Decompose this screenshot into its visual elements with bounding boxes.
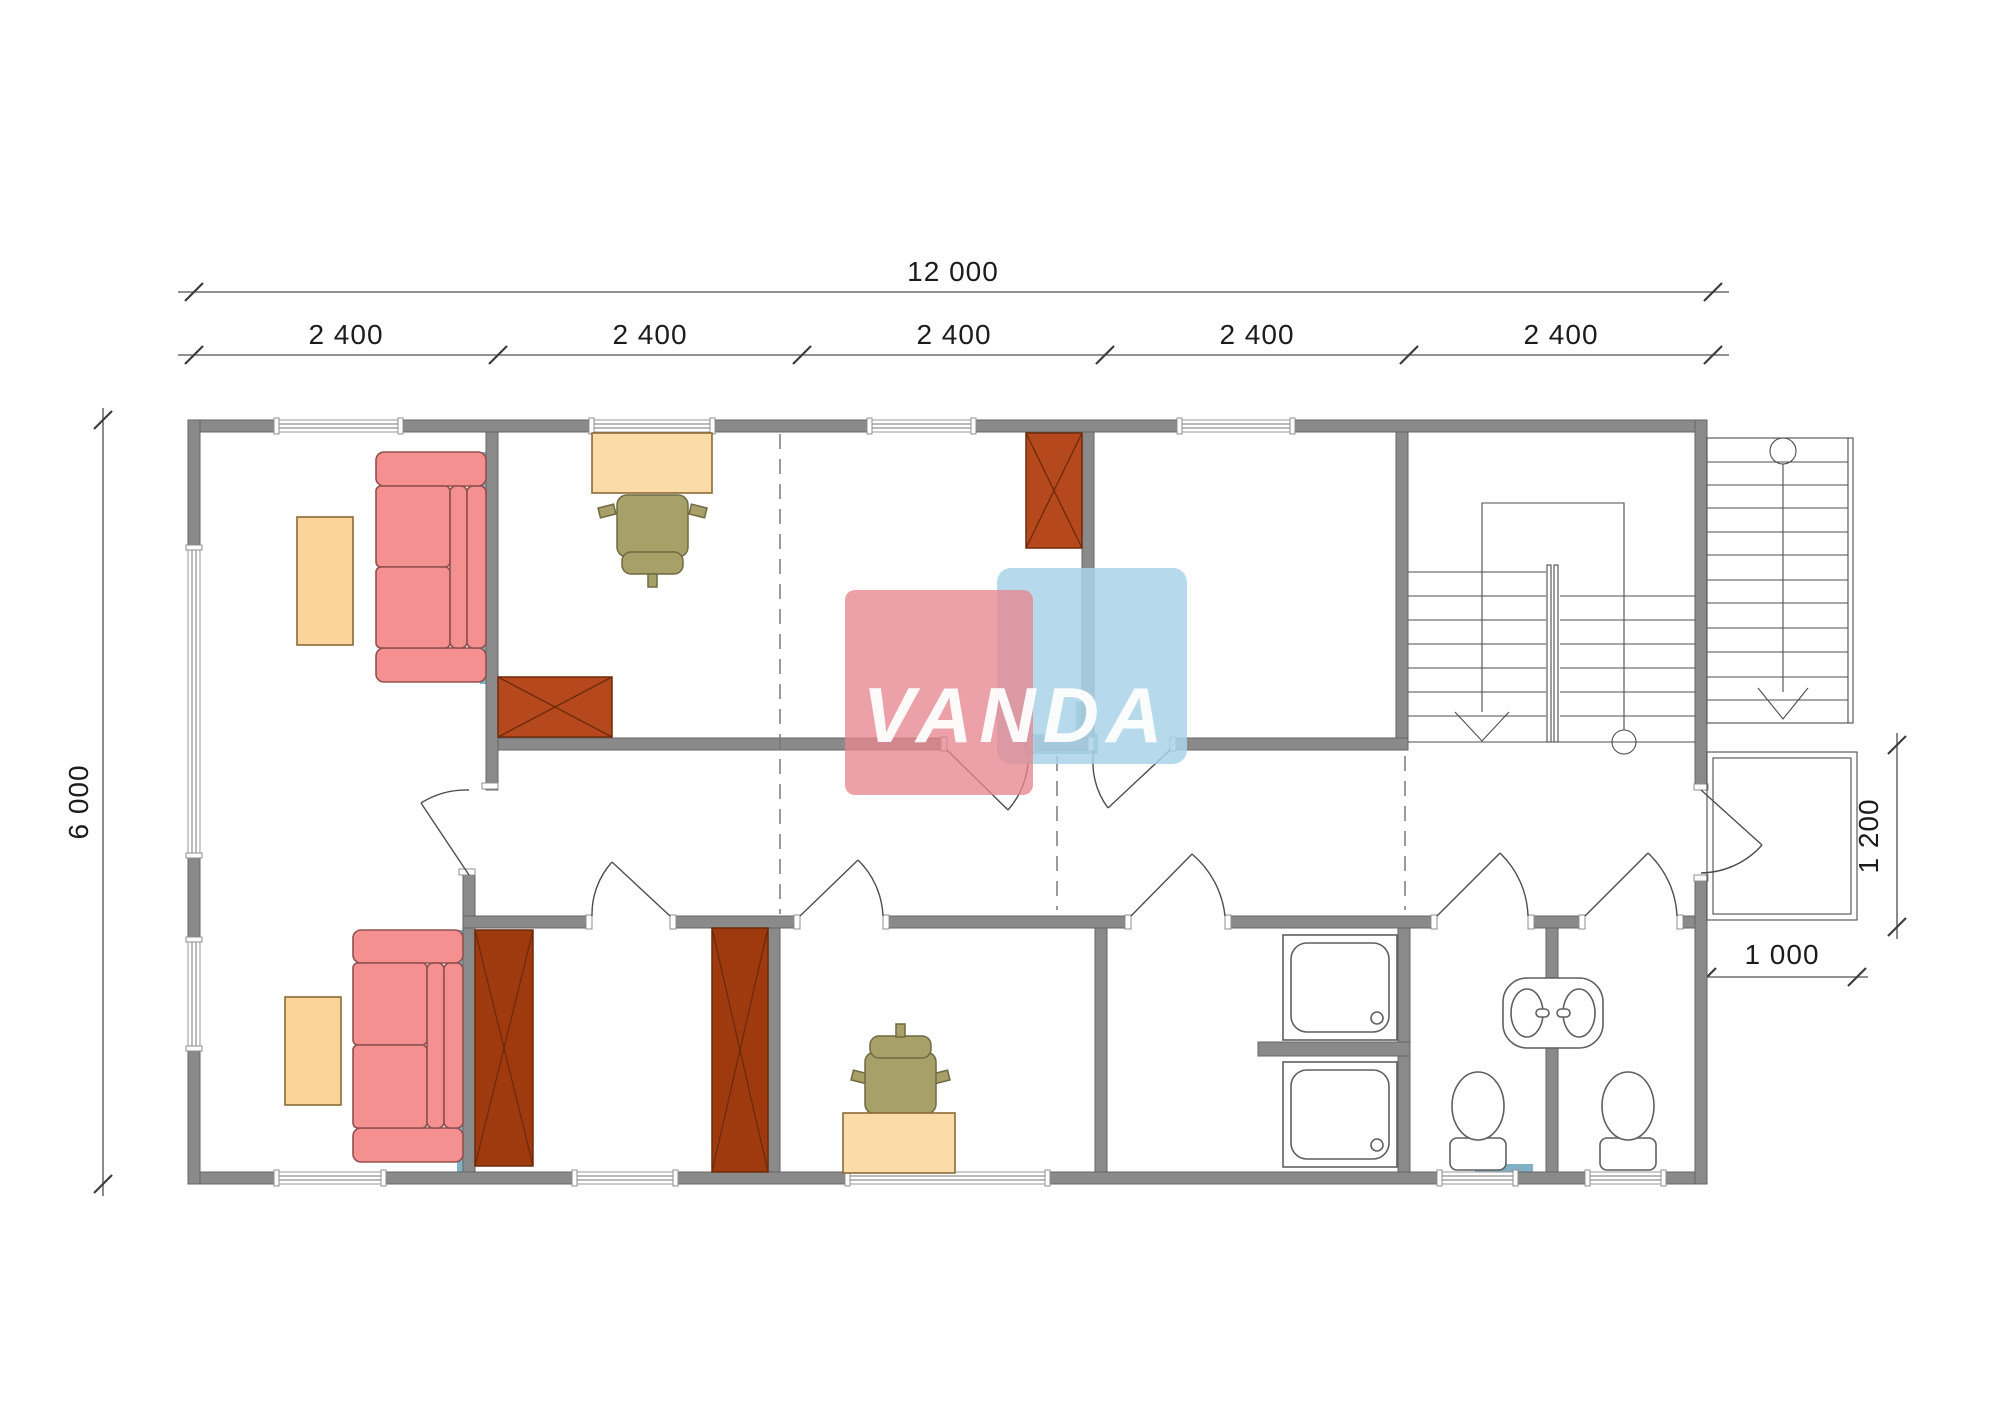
wall-ext-top (188, 420, 277, 432)
staircase-interior (1408, 503, 1695, 754)
dim-height: 6 000 (63, 764, 94, 839)
window (1177, 418, 1295, 434)
shower-tray-bottom (1283, 1062, 1397, 1167)
wall-ext-right (1695, 420, 1707, 790)
dim-module-3: 2 400 (916, 319, 991, 350)
watermark: VANDA (845, 568, 1187, 795)
wardrobe-room2-low (498, 677, 612, 737)
desk-bottom (843, 1113, 955, 1173)
coffee-table-bottom (285, 997, 341, 1105)
sofa-top (376, 452, 486, 682)
door-living (421, 783, 498, 875)
window (589, 418, 715, 434)
wall-wc1-wc2 (1546, 928, 1558, 1172)
window (1585, 1170, 1666, 1186)
door-wc2 (1579, 853, 1683, 929)
toilet-wc2 (1600, 1072, 1656, 1170)
dim-module-5: 2 400 (1523, 319, 1598, 350)
wall-hall-bottom (463, 916, 592, 928)
wall-shower-stub (1258, 1042, 1410, 1056)
office-chair-top (598, 495, 707, 587)
window (1437, 1170, 1518, 1186)
wall-stairwell (1396, 432, 1408, 740)
door-wc1 (1431, 853, 1534, 929)
wall-ext-left (188, 420, 200, 548)
double-sink (1503, 978, 1603, 1048)
shower-tray-top (1283, 935, 1397, 1040)
wardrobe-bed2-right (712, 928, 768, 1172)
dim-module-2: 2 400 (612, 319, 687, 350)
wall-hall-top-b (1170, 738, 1408, 750)
floor-plan-drawing: 12 000 2 400 2 400 2 400 2 400 2 400 6 0… (0, 0, 2000, 1423)
dim-porch-width: 1 000 (1744, 939, 1819, 970)
toilet-wc1 (1450, 1072, 1506, 1170)
wall-study-shower (1095, 928, 1107, 1172)
window (186, 545, 202, 858)
window (572, 1170, 678, 1186)
dim-module-1: 2 400 (308, 319, 383, 350)
stair-handrail (1547, 565, 1558, 742)
door-study (794, 860, 889, 929)
window (274, 1170, 386, 1186)
door-entrance (1694, 784, 1762, 881)
door-shower (1125, 854, 1231, 929)
wardrobe-bed2-left (475, 930, 533, 1166)
doors (421, 737, 1762, 929)
wall-living-upper (486, 432, 498, 790)
porch (1707, 752, 1857, 920)
exterior-stairs (1707, 438, 1853, 723)
dim-module-4: 2 400 (1219, 319, 1294, 350)
office-chair-bottom (851, 1024, 950, 1114)
wall-ext-bottom (188, 1172, 277, 1184)
door-bedroom2 (586, 862, 676, 929)
dim-total-width: 12 000 (907, 256, 999, 287)
dim-porch-depth: 1 200 (1853, 798, 1884, 873)
wall-bed2-study (768, 928, 780, 1172)
wardrobe-room2-high (1026, 433, 1082, 548)
window (186, 937, 202, 1051)
window (274, 418, 403, 434)
desk-top (592, 433, 712, 493)
watermark-text: VANDA (863, 671, 1170, 759)
coffee-table-top (297, 517, 353, 645)
floor-plan-page: 12 000 2 400 2 400 2 400 2 400 2 400 6 0… (0, 0, 2000, 1423)
sofa-bottom (353, 930, 463, 1162)
window (867, 418, 976, 434)
